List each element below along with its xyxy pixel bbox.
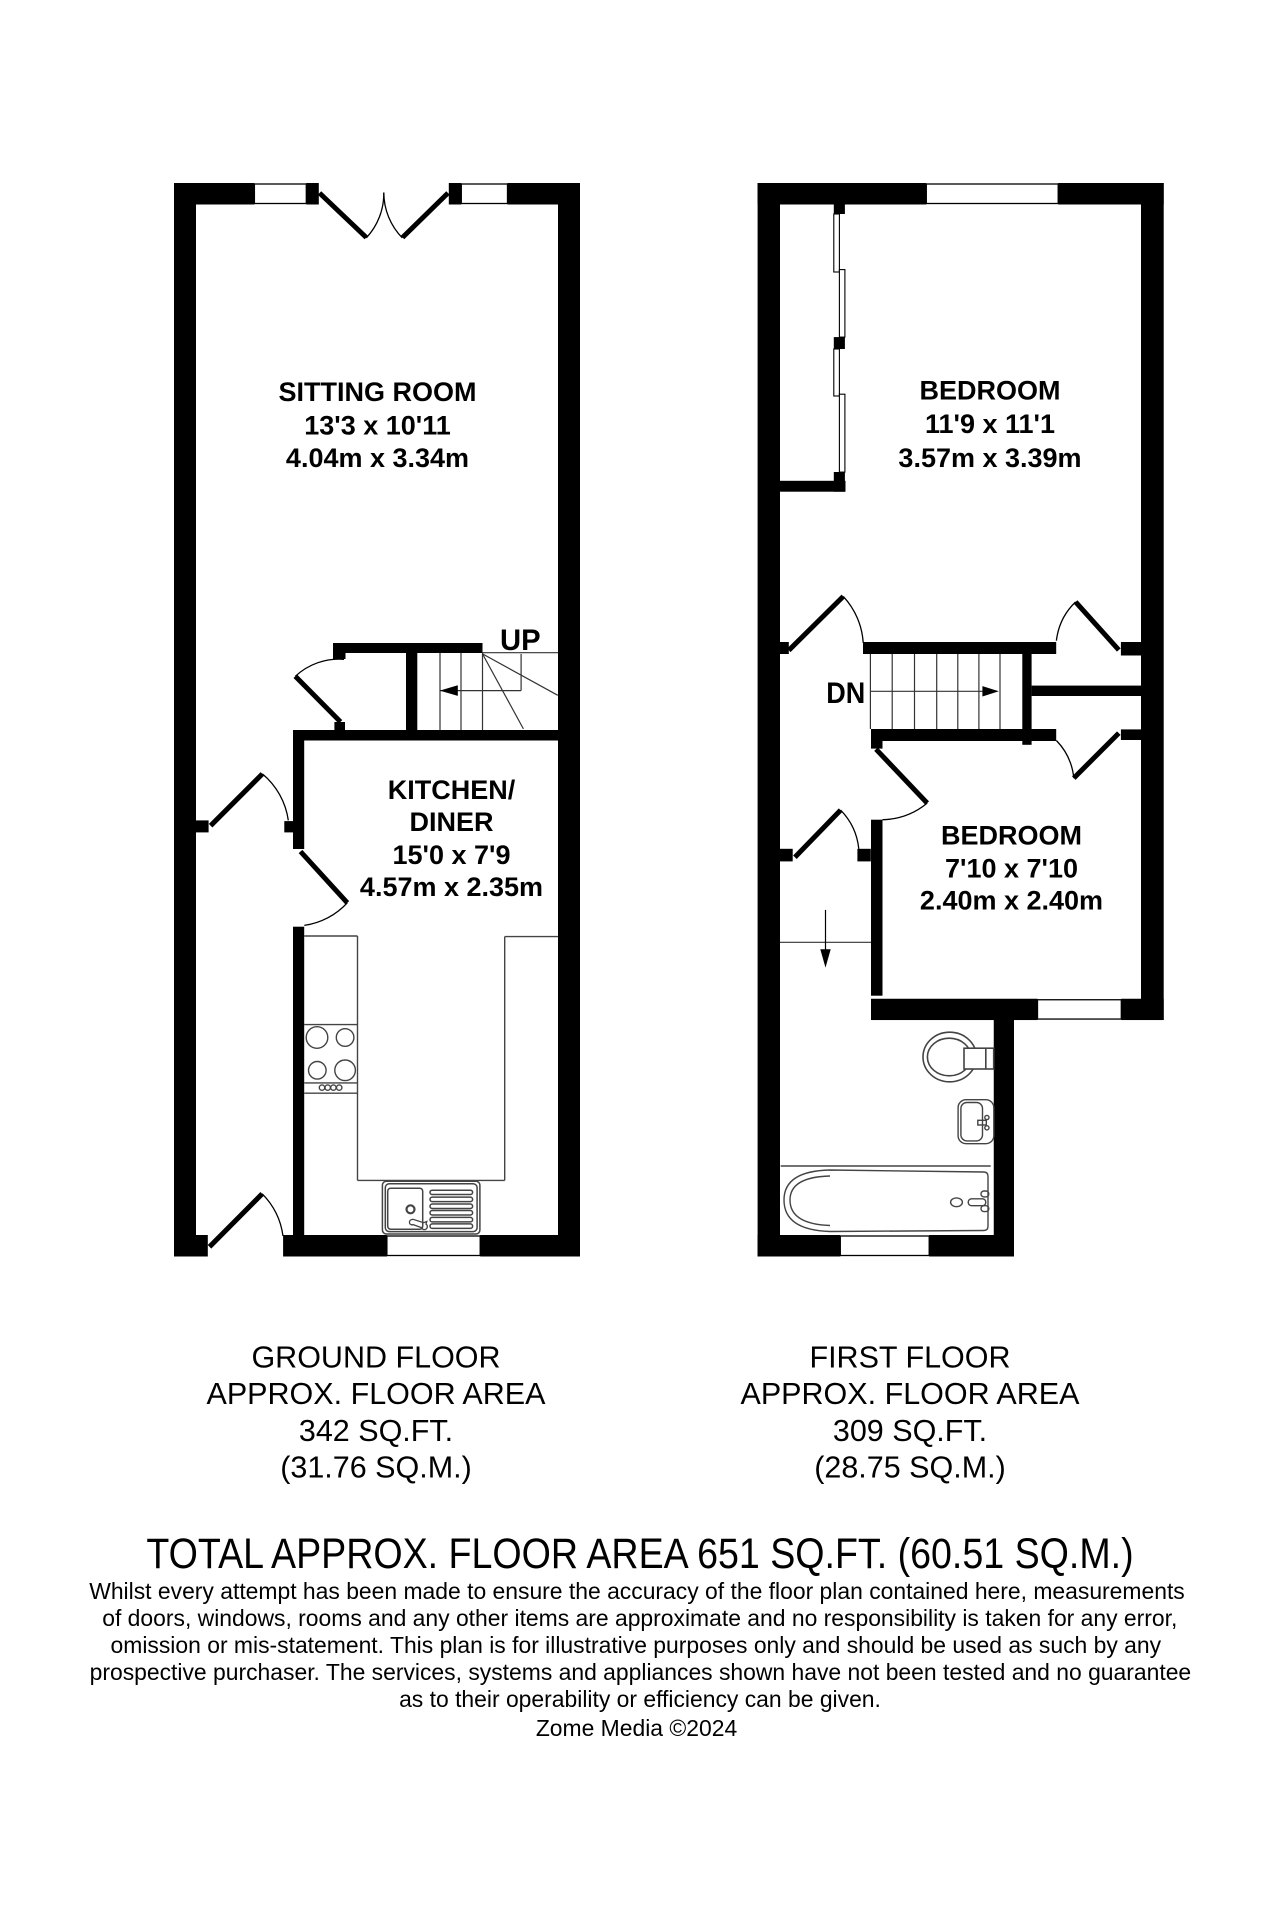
svg-text:(31.76 SQ.M.): (31.76 SQ.M.)	[280, 1451, 472, 1485]
svg-text:342 SQ.FT.: 342 SQ.FT.	[299, 1414, 453, 1448]
svg-text:APPROX. FLOOR AREA: APPROX. FLOOR AREA	[741, 1377, 1081, 1411]
svg-text:prospective purchaser. The ser: prospective purchaser. The services, sys…	[90, 1659, 1192, 1685]
svg-text:BEDROOM: BEDROOM	[920, 376, 1061, 406]
svg-text:2.40m x 2.40m: 2.40m x 2.40m	[920, 885, 1103, 915]
svg-text:4.57m x 2.35m: 4.57m x 2.35m	[360, 872, 543, 902]
svg-text:13'3 x 10'11: 13'3 x 10'11	[304, 411, 450, 441]
svg-text:DINER: DINER	[409, 807, 493, 837]
svg-text:TOTAL APPROX. FLOOR AREA 651 S: TOTAL APPROX. FLOOR AREA 651 SQ.FT. (60.…	[146, 1530, 1133, 1578]
svg-text:309 SQ.FT.: 309 SQ.FT.	[833, 1414, 987, 1448]
svg-text:7'10 x 7'10: 7'10 x 7'10	[945, 854, 1078, 884]
svg-text:Zome Media ©2024: Zome Media ©2024	[536, 1715, 738, 1741]
svg-text:KITCHEN/: KITCHEN/	[388, 775, 516, 805]
svg-text:3.57m x 3.39m: 3.57m x 3.39m	[898, 443, 1081, 473]
svg-text:GROUND FLOOR: GROUND FLOOR	[251, 1341, 500, 1375]
svg-text:11'9 x 11'1: 11'9 x 11'1	[925, 409, 1055, 439]
svg-text:SITTING ROOM: SITTING ROOM	[279, 377, 477, 407]
svg-text:DN: DN	[826, 677, 865, 710]
svg-text:UP: UP	[500, 624, 541, 657]
svg-text:omission or mis-statement. Thi: omission or mis-statement. This plan is …	[111, 1632, 1162, 1658]
svg-text:of doors, windows, rooms and a: of doors, windows, rooms and any other i…	[102, 1605, 1177, 1631]
svg-text:(28.75 SQ.M.): (28.75 SQ.M.)	[814, 1451, 1006, 1485]
svg-text:FIRST FLOOR: FIRST FLOOR	[809, 1341, 1010, 1375]
svg-text:4.04m x 3.34m: 4.04m x 3.34m	[286, 443, 469, 473]
svg-text:as to their operability or eff: as to their operability or efficiency ca…	[399, 1686, 881, 1712]
svg-text:Whilst every attempt has been: Whilst every attempt has been made to en…	[89, 1578, 1185, 1604]
svg-text:APPROX. FLOOR AREA: APPROX. FLOOR AREA	[207, 1377, 547, 1411]
svg-text:BEDROOM: BEDROOM	[941, 820, 1082, 850]
svg-text:15'0 x 7'9: 15'0 x 7'9	[393, 840, 511, 870]
